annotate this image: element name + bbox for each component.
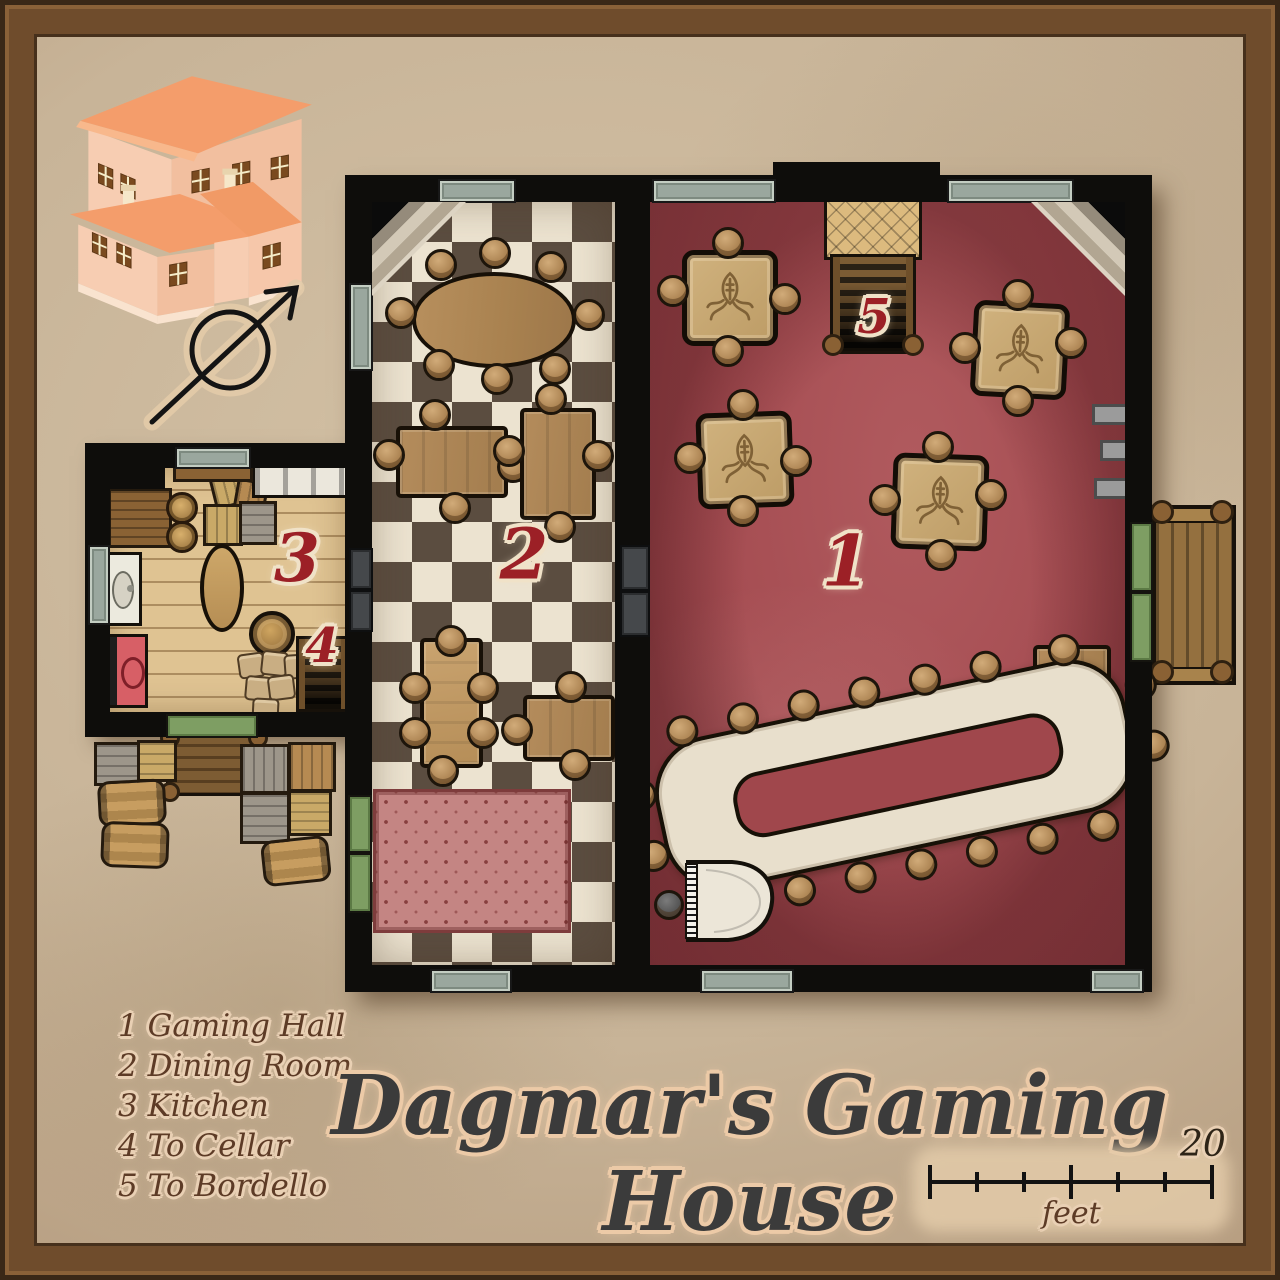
stool bbox=[425, 249, 457, 281]
door-east-exit bbox=[1130, 592, 1153, 662]
door-kitchen-south bbox=[166, 714, 258, 738]
dining-table bbox=[420, 638, 483, 768]
scale-bar-unit: feet bbox=[1042, 1196, 1101, 1231]
gaming-table bbox=[890, 452, 989, 551]
bordello-landing bbox=[824, 198, 922, 260]
stair-post bbox=[822, 334, 844, 356]
stool bbox=[467, 717, 499, 749]
door-east-exit bbox=[1130, 522, 1153, 592]
window bbox=[700, 969, 794, 993]
stool bbox=[1055, 327, 1087, 359]
window bbox=[947, 179, 1074, 203]
stove bbox=[106, 634, 148, 708]
marker-bordello-stairs: 5 bbox=[857, 289, 890, 345]
wall bbox=[85, 443, 165, 489]
scale-bar-value: 20 bbox=[1180, 1124, 1226, 1165]
window bbox=[430, 969, 512, 993]
kitchen-counter bbox=[252, 464, 349, 498]
stool bbox=[539, 353, 571, 385]
map-canvas: 1 2 3 4 5 1 Gaming Hall 2 Dining Room 3 … bbox=[0, 0, 1280, 1280]
stool bbox=[479, 237, 511, 269]
stool bbox=[727, 389, 759, 421]
stool bbox=[555, 671, 587, 703]
window bbox=[652, 179, 776, 203]
barrel bbox=[260, 835, 332, 888]
stool bbox=[712, 335, 744, 367]
stool bbox=[535, 251, 567, 283]
stool bbox=[925, 539, 957, 571]
stool bbox=[769, 283, 801, 315]
barrel bbox=[166, 492, 198, 524]
barrel bbox=[166, 521, 198, 553]
stool bbox=[657, 275, 689, 307]
door-west-exit bbox=[348, 795, 372, 853]
stool bbox=[674, 442, 706, 474]
compass-icon bbox=[138, 276, 314, 442]
window bbox=[349, 283, 373, 371]
legend-item: 1 Gaming Hall bbox=[118, 1006, 352, 1046]
marker-cellar-stairs: 4 bbox=[305, 618, 338, 674]
stool bbox=[399, 672, 431, 704]
stool bbox=[949, 332, 981, 364]
crate bbox=[137, 740, 177, 782]
stool bbox=[727, 495, 759, 527]
stool bbox=[481, 363, 513, 395]
porch-post bbox=[1210, 500, 1234, 524]
crate bbox=[203, 504, 243, 546]
stool bbox=[419, 399, 451, 431]
crate bbox=[288, 742, 336, 792]
barrel bbox=[100, 821, 170, 869]
window bbox=[1090, 969, 1144, 993]
dining-table bbox=[396, 426, 508, 498]
door-dining-gaming bbox=[620, 545, 650, 591]
crate bbox=[239, 501, 277, 545]
porch-post bbox=[1210, 660, 1234, 684]
gaming-table bbox=[682, 250, 778, 346]
stool bbox=[1002, 385, 1034, 417]
porch-post bbox=[1150, 500, 1174, 524]
stool bbox=[573, 299, 605, 331]
stool bbox=[712, 227, 744, 259]
stool bbox=[427, 755, 459, 787]
door-west-exit bbox=[348, 853, 372, 913]
stool bbox=[582, 440, 614, 472]
kitchen-rack bbox=[108, 488, 172, 548]
door-kitchen-dining bbox=[349, 548, 373, 590]
window bbox=[88, 545, 110, 625]
stool bbox=[975, 479, 1007, 511]
stool bbox=[435, 625, 467, 657]
stool bbox=[922, 431, 954, 463]
house-window bbox=[263, 242, 280, 269]
stool bbox=[399, 717, 431, 749]
stool bbox=[780, 445, 812, 477]
crate bbox=[240, 792, 290, 844]
stool bbox=[373, 439, 405, 471]
stool bbox=[385, 297, 417, 329]
piano-stool bbox=[654, 890, 684, 920]
marker-gaming-hall: 1 bbox=[822, 519, 871, 602]
wall bbox=[773, 162, 940, 202]
piano bbox=[676, 856, 780, 948]
rug bbox=[373, 789, 571, 933]
stool bbox=[423, 349, 455, 381]
stool bbox=[544, 511, 576, 543]
window bbox=[175, 447, 251, 469]
east-porch bbox=[1152, 505, 1236, 685]
marker-kitchen: 3 bbox=[274, 519, 320, 597]
stool bbox=[439, 492, 471, 524]
stool bbox=[1002, 279, 1034, 311]
kitchen-prep-table bbox=[200, 544, 244, 632]
door-dining-gaming bbox=[620, 591, 650, 637]
stool bbox=[559, 749, 591, 781]
stool bbox=[467, 672, 499, 704]
door-kitchen-dining bbox=[349, 590, 373, 632]
stool bbox=[501, 714, 533, 746]
stool bbox=[869, 484, 901, 516]
window bbox=[438, 179, 516, 203]
crate bbox=[240, 744, 290, 794]
crate bbox=[288, 790, 332, 836]
barrel bbox=[97, 778, 167, 827]
stool bbox=[535, 383, 567, 415]
stair-post bbox=[902, 334, 924, 356]
stool bbox=[493, 435, 525, 467]
marker-dining-room: 2 bbox=[500, 512, 549, 595]
